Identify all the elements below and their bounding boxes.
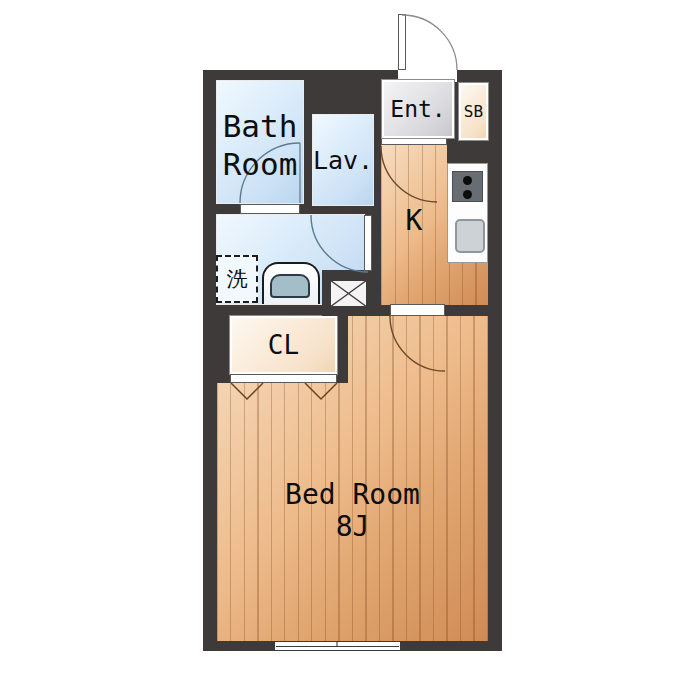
closet-door-track — [230, 374, 337, 383]
kitchen-bedroom-door-leaf — [390, 304, 445, 316]
burner-icon — [463, 190, 472, 199]
floor-plan: Bath Room Lav. Ent. SB K CL Bed Room 8J … — [0, 0, 700, 700]
shoe-box — [459, 83, 488, 140]
entrance-door-leaf — [398, 14, 406, 70]
closet-floor — [230, 316, 337, 374]
pipe-space-box — [330, 280, 367, 307]
entrance-floor — [382, 80, 454, 138]
washing-machine-icon — [216, 255, 258, 303]
bath-room-floor — [217, 81, 303, 203]
bath-door-leaf — [240, 204, 300, 214]
toilet-bowl-icon — [270, 274, 310, 298]
entrance-step — [381, 138, 447, 145]
washroom-door-leaf — [364, 215, 372, 271]
sink-icon — [455, 219, 485, 253]
wall-under-shoebox — [447, 138, 488, 163]
entrance-door-swing — [402, 15, 457, 70]
bedroom-window — [275, 641, 400, 651]
burner-icon — [463, 176, 472, 185]
lavatory-floor — [313, 115, 373, 205]
